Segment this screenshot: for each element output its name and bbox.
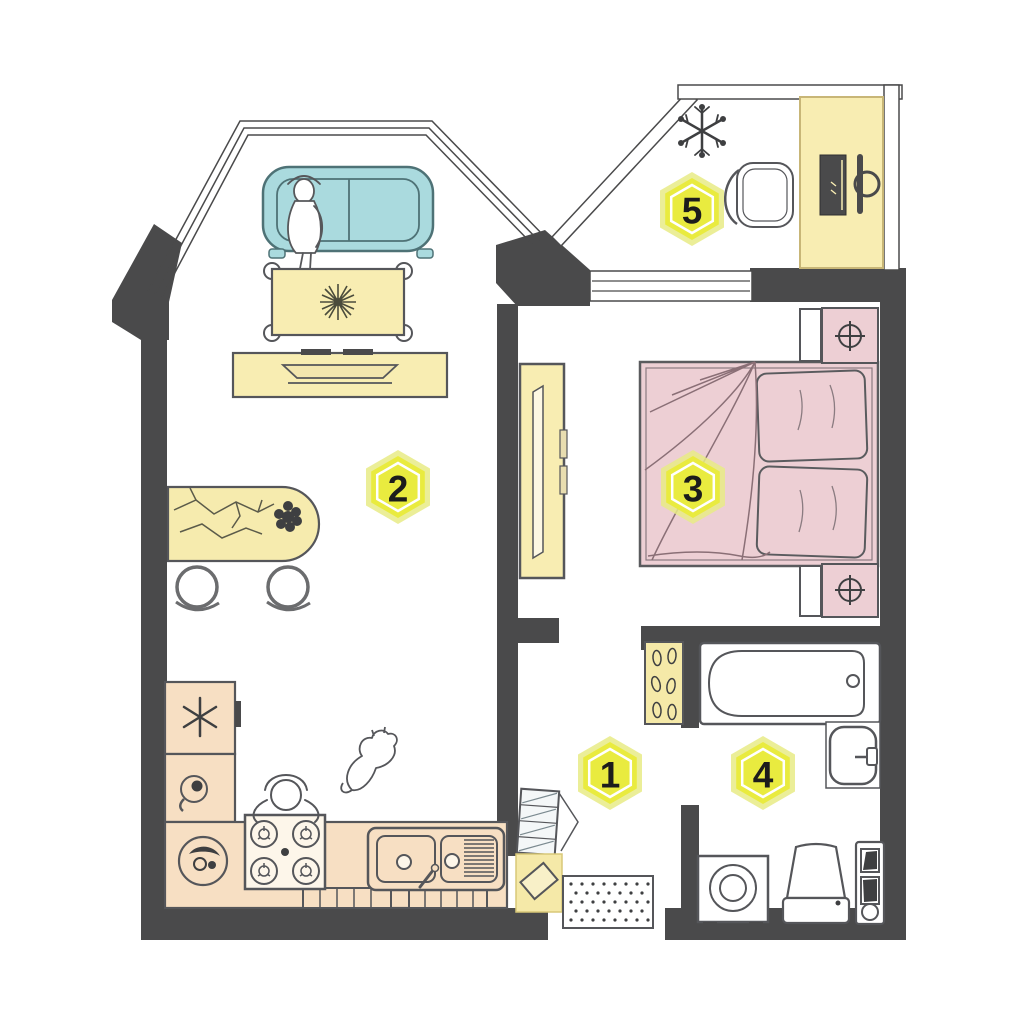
tv-icon [283,365,397,378]
room-number-label: 1 [600,755,621,796]
bathroom-sink [826,722,880,788]
faucet-icon [867,748,877,765]
fridge [165,682,241,754]
counter-mid [165,754,235,822]
wall-bottom-left [141,908,548,940]
wall-bathroom-left-lower [681,805,699,910]
wall-bedroom-stub [497,618,559,643]
floor-plan-page: 1 2 3 4 5 [0,0,1024,1024]
desk-lamp-icon [857,154,863,214]
wardrobe [520,364,567,578]
bathtub [700,643,880,724]
room-number-label: 2 [388,469,409,510]
wall-spine [497,304,518,856]
yellow-doormat [516,854,562,912]
shoe-rack [645,642,683,724]
dandelion-centerpiece-icon [320,284,356,320]
fruit-bowl-icon [179,837,227,885]
tv-stand [233,349,447,397]
nightstand-top [800,308,878,363]
coffee-table [264,263,412,341]
water-heater [856,842,884,924]
wall-bedroom-top [750,268,882,302]
stove [245,815,325,889]
drain-icon [847,675,859,687]
bedroom-window [590,271,752,301]
floor-plan-canvas: 1 2 3 4 5 [0,0,1024,1024]
room-number-label: 3 [683,469,704,510]
dining-table [168,487,319,561]
loggia-right-wall [884,85,899,270]
washing-machine [698,856,768,927]
sofa [263,167,433,258]
kitchen-sink [368,828,504,890]
nightstand-bottom [800,564,878,617]
room-number-label: 5 [682,191,703,232]
entry-rug [563,876,653,928]
wall-right [880,268,906,940]
room-number-label: 4 [753,755,774,796]
desk [800,97,883,268]
wall-left [141,336,167,940]
